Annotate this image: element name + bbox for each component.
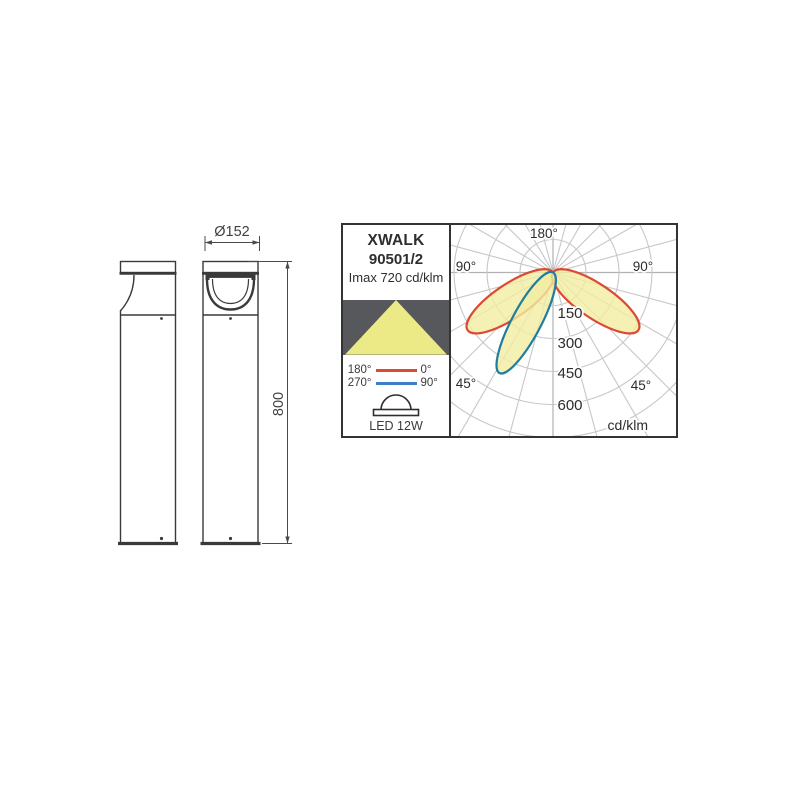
product-code: 90501/2 [343,251,449,269]
lens-inner-outline [213,279,249,304]
lamp-block: LED 12W [343,392,449,433]
fixing-dot [229,537,232,540]
beam-distribution-icon [343,300,449,355]
legend-label: 0° [421,364,448,376]
legend-label: 90° [421,377,448,389]
red-plane-line-icon [376,369,417,371]
angle-label-45-right: 45° [631,378,651,393]
polar-photometric-chart: 180° 90° 90° 45° 45° 150 300 450 600 cd/… [451,225,676,436]
arrowhead-left-icon [205,240,212,244]
diameter-dimension: Ø152 [205,224,260,251]
arrowhead-right-icon [253,240,260,244]
polar-chart-area: 180° 90° 90° 45° 45° 150 300 450 600 cd/… [451,225,676,436]
fixing-dot [160,537,163,540]
plane-legend: 180° 0° 270° 90° [343,363,449,389]
fixing-dot [229,317,232,320]
angle-label-45-left: 45° [456,376,476,391]
ring-label-150: 150 [558,305,583,322]
ring-label-300: 300 [558,335,583,352]
arrowhead-down-icon [285,537,289,544]
product-imax: Imax 720 cd/klm [343,270,449,286]
side-view [118,262,178,544]
blue-plane-line-icon [376,382,417,384]
height-dimension: 800 [248,262,292,544]
legend-row-c90-c270: 270° 90° [343,376,449,389]
units-label: cd/klm [608,417,648,433]
legend-label: 180° [345,364,372,376]
height-dimension-label: 800 [271,392,287,416]
front-view [201,262,261,544]
info-column: XWALK 90501/2 Imax 720 cd/klm 180° 0° 27… [343,225,451,436]
angle-label-90-right: 90° [633,259,653,274]
product-name: XWALK [343,232,449,251]
lamp-label: LED 12W [343,419,449,433]
ring-label-600: 600 [558,397,583,414]
angle-label-90-left: 90° [456,259,476,274]
lens-outline [207,279,254,310]
legend-label: 270° [345,377,372,389]
beam-triangle-icon [343,300,449,355]
product-header: XWALK 90501/2 Imax 720 cd/klm [343,225,449,300]
legend-row-c0-c180: 180° 0° [343,363,449,376]
diameter-dimension-label: Ø152 [214,224,249,240]
arrowhead-up-icon [285,262,289,269]
led-icon [372,392,420,417]
ring-label-450: 450 [558,365,583,382]
angle-label-180: 180° [530,226,558,241]
fixing-dot [160,317,163,320]
photometric-panel: XWALK 90501/2 Imax 720 cd/klm 180° 0° 27… [341,223,678,438]
spec-sheet: Ø152 800 XWALK 90501/2 Imax 720 cd/klm [0,0,800,800]
